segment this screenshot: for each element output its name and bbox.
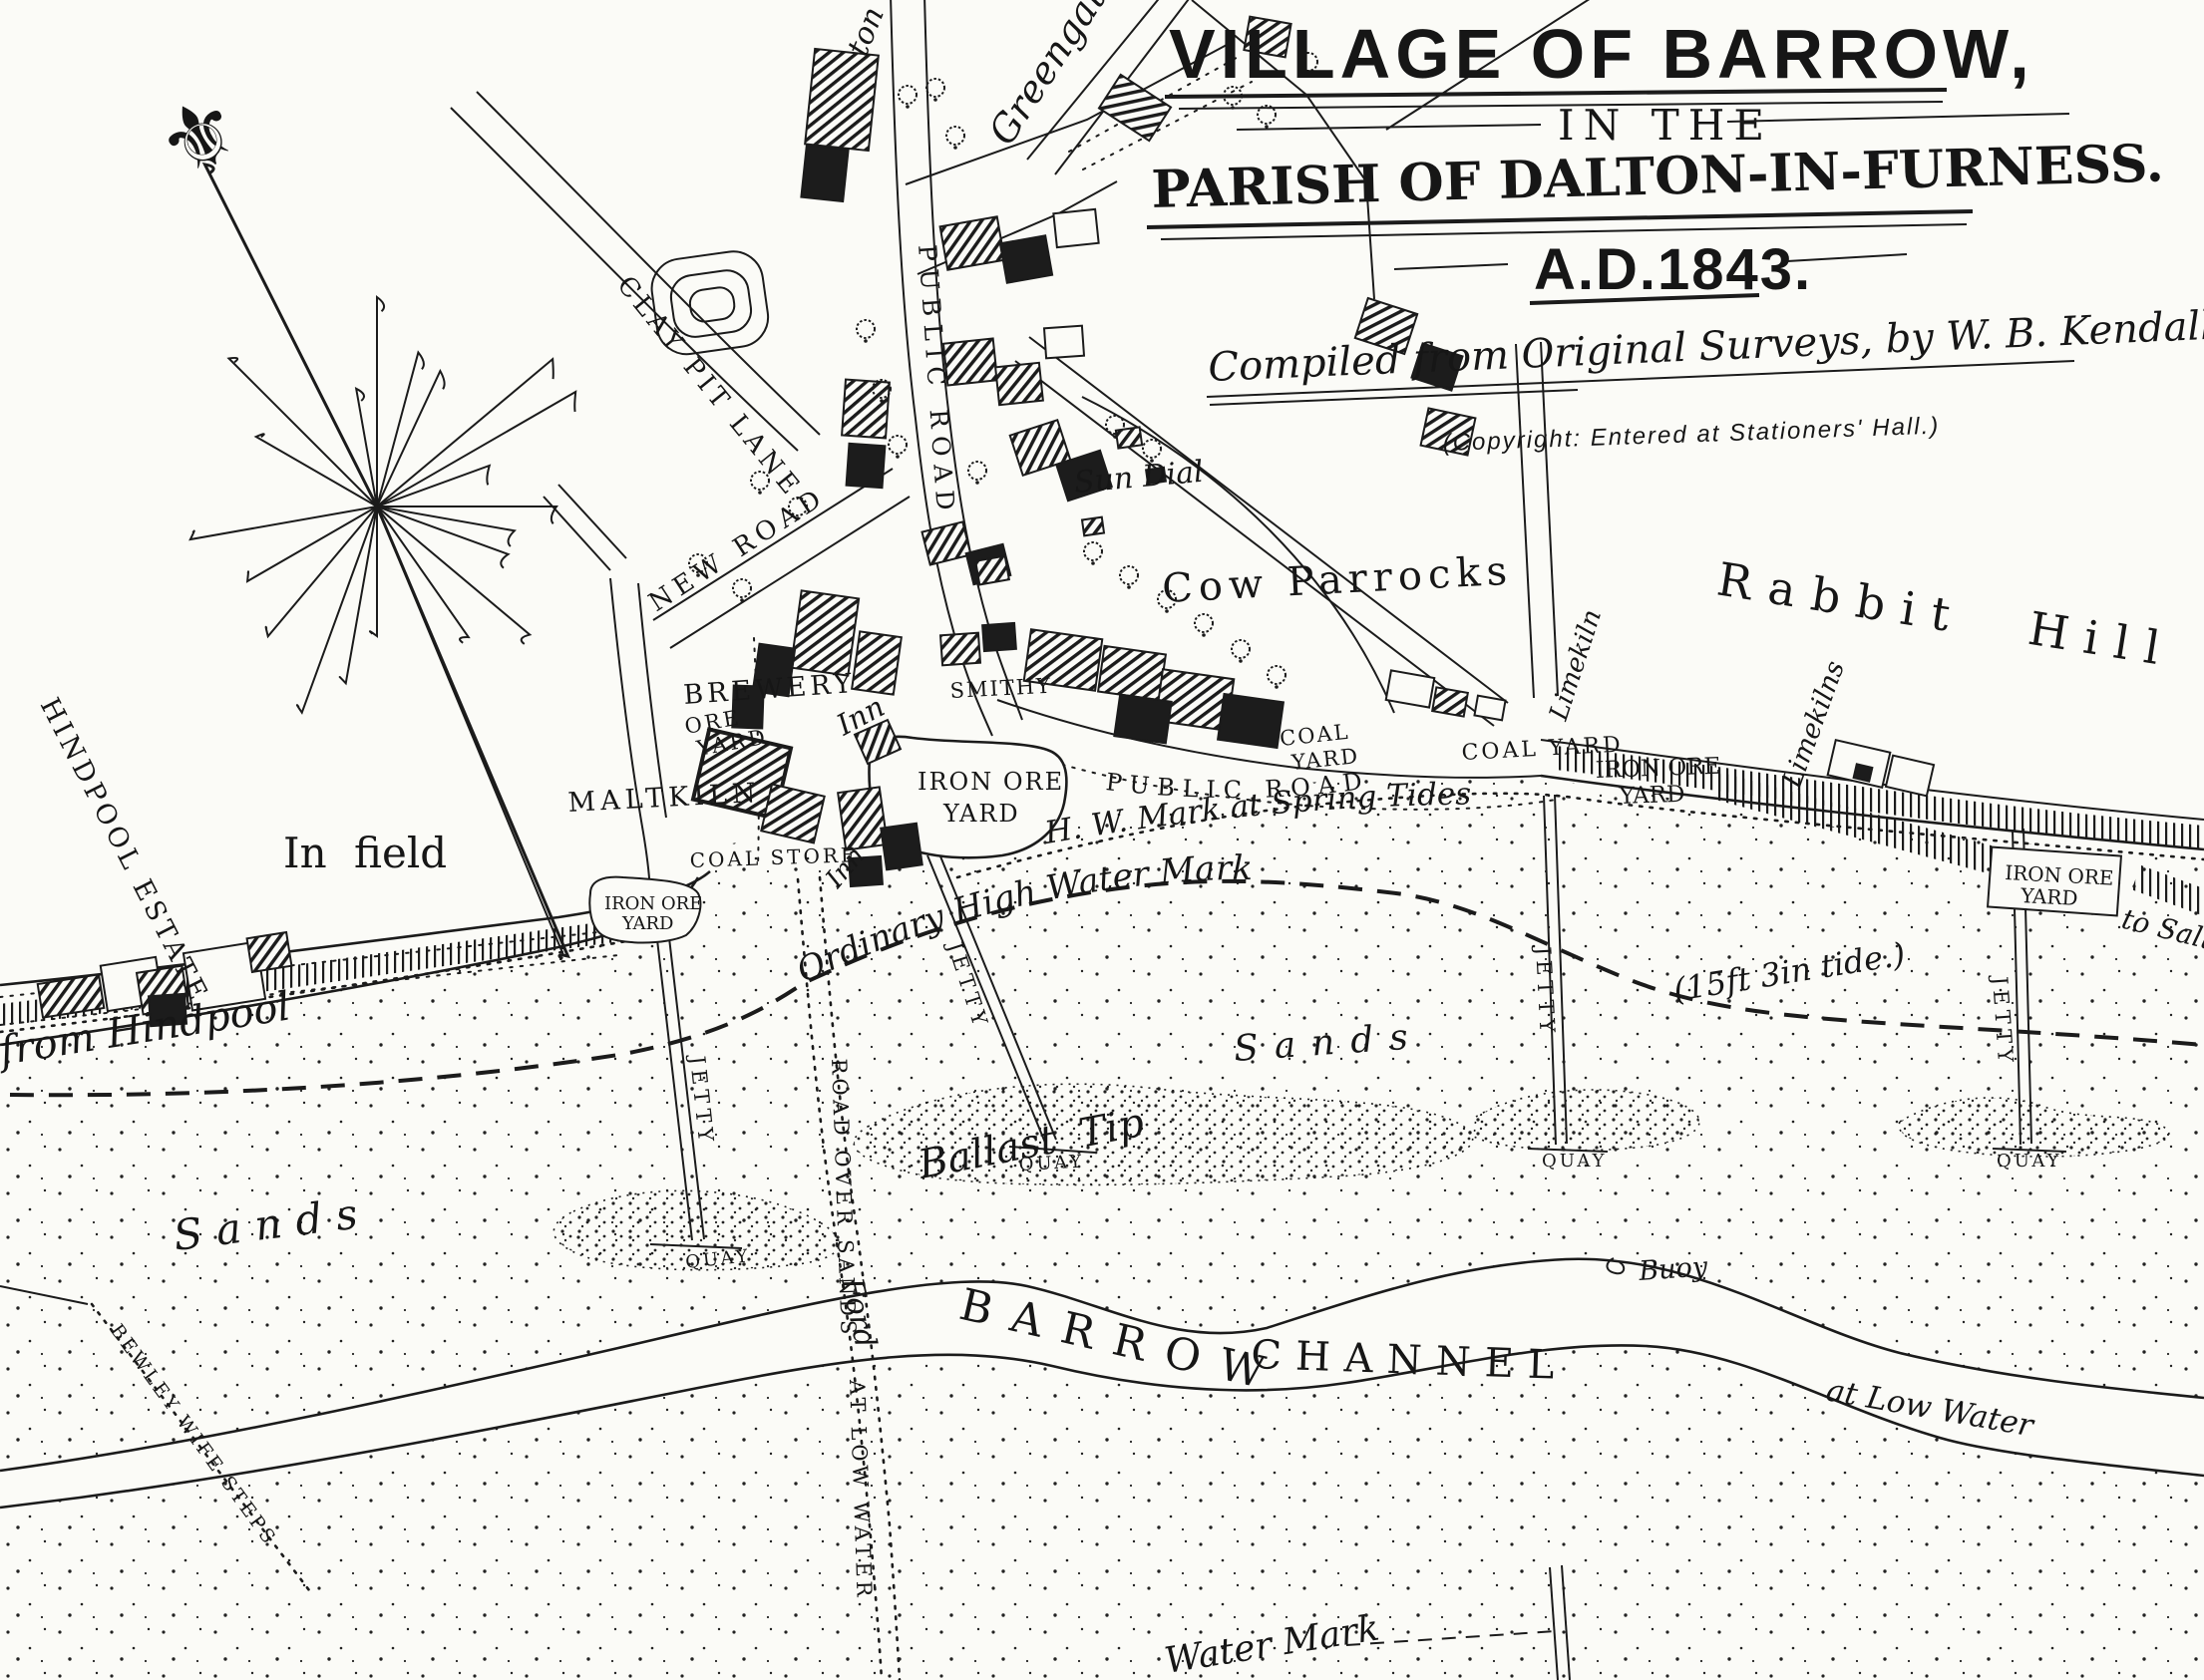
- label-hindpool-estate: HINDPOOL ESTATE: [34, 693, 214, 1008]
- label-cow-parrocks: Cow Parrocks: [1161, 548, 1514, 612]
- title-in-the: IN THE: [1558, 101, 1773, 150]
- title-parish: PARISH OF DALTON-IN-FURNESS.: [1151, 133, 2165, 220]
- map-title: VILLAGE OF BARROW,: [1169, 15, 2034, 93]
- label-iron-ore-yard-left-2: YARD: [621, 913, 673, 934]
- label-iron-ore-yard-center-1: IRON ORE: [918, 768, 1064, 796]
- fleur-de-lis-icon: ⚜: [138, 70, 262, 203]
- label-smithy: SMITHY: [949, 674, 1052, 703]
- label-quay-3: QUAY: [1542, 1151, 1608, 1172]
- label-maltkiln: MALTKILN: [567, 778, 762, 819]
- label-rabbit-hill: Rabbit Hill: [1713, 552, 2179, 678]
- label-iron-ore-yard-right-2: YARD: [1618, 782, 1685, 810]
- label-greengate: Greengate: [980, 0, 1127, 153]
- title-block: VILLAGE OF BARROW, IN THE PARISH OF DALT…: [1147, 15, 2204, 457]
- label-quay-4: QUAY: [1997, 1151, 2062, 1172]
- label-iron-ore-yard-right-1: IRON ORE: [1595, 754, 1721, 784]
- label-in-field: In field: [283, 829, 447, 877]
- map-canvas: ⚜ VILLAGE OF BARROW, IN THE PARISH OF DA…: [0, 0, 2204, 1680]
- label-iron-ore-yard-center-2: YARD: [942, 800, 1020, 828]
- title-date: A.D.1843.: [1534, 237, 1812, 302]
- label-brewery: BREWERY: [682, 668, 856, 711]
- label-buoy: Buoy: [1637, 1251, 1708, 1287]
- label-jetty-3: JETTY: [1531, 944, 1560, 1038]
- label-iron-ore-yard-left-1: IRON ORE: [604, 893, 702, 914]
- label-limekiln: Limekiln: [1544, 606, 1608, 725]
- label-clay-pit-lane: CLAY PIT LANE: [611, 271, 808, 504]
- copyright-note: (Copyright: Entered at Stationers' Hall.…: [1442, 413, 1940, 457]
- barrow-map: ⚜ VILLAGE OF BARROW, IN THE PARISH OF DA…: [0, 0, 2204, 1680]
- label-iron-ore-yard-far-2: YARD: [2020, 883, 2078, 910]
